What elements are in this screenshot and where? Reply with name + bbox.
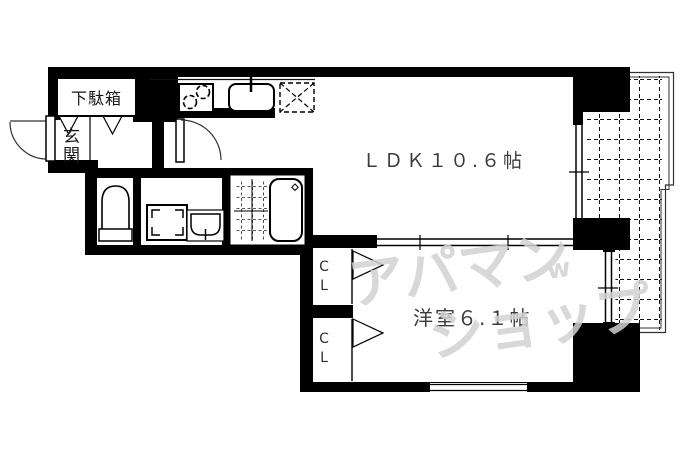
closet-lower-label: CL: [317, 331, 331, 369]
wall-bottom-right-block: [573, 323, 640, 392]
sanitary: [99, 174, 306, 246]
wall-hall-ldk: [133, 67, 178, 122]
toilet-icon: [102, 186, 129, 230]
wall-hall-post: [152, 120, 164, 172]
closet-marks: [352, 249, 383, 381]
closet-door-icon: [353, 251, 383, 279]
wall-closet-divider: [300, 305, 353, 318]
wall-ldk-right: [573, 108, 583, 125]
floor-plan-drawing: [0, 0, 690, 460]
closet-upper-label: CL: [317, 259, 331, 297]
entrance-door-arc: [10, 122, 47, 159]
closet-door-icon: [353, 319, 383, 347]
wall-top-right-block: [573, 67, 630, 112]
ldk-door-leaf: [176, 119, 184, 162]
shoe-cabinet-label: 下駄箱: [56, 77, 137, 117]
western-room-label: 洋室６.１帖: [413, 302, 531, 331]
entrance-door-leaf: [46, 116, 55, 161]
wall-toilet-divider: [133, 178, 141, 245]
refrigerator-space-icon: [280, 83, 314, 112]
balcony-tile-area: [585, 112, 662, 218]
ldk-room-label: ＬＤＫ１０.６帖: [362, 146, 525, 173]
sliding-partition: [377, 239, 603, 246]
ldk-door-arc: [181, 120, 221, 160]
shoe-cabinet-door-icon: [103, 116, 122, 134]
bathroom-tile-floor: [234, 179, 268, 241]
wall-toilet-left: [85, 172, 97, 255]
floor-plan: 下駄箱 玄関 ＬＤＫ１０.６帖 洋室６.１帖 CL CL アパマン ショップ w: [0, 0, 690, 460]
wall-ldk-western: [300, 235, 377, 248]
entrance-label: 玄関: [60, 127, 77, 165]
